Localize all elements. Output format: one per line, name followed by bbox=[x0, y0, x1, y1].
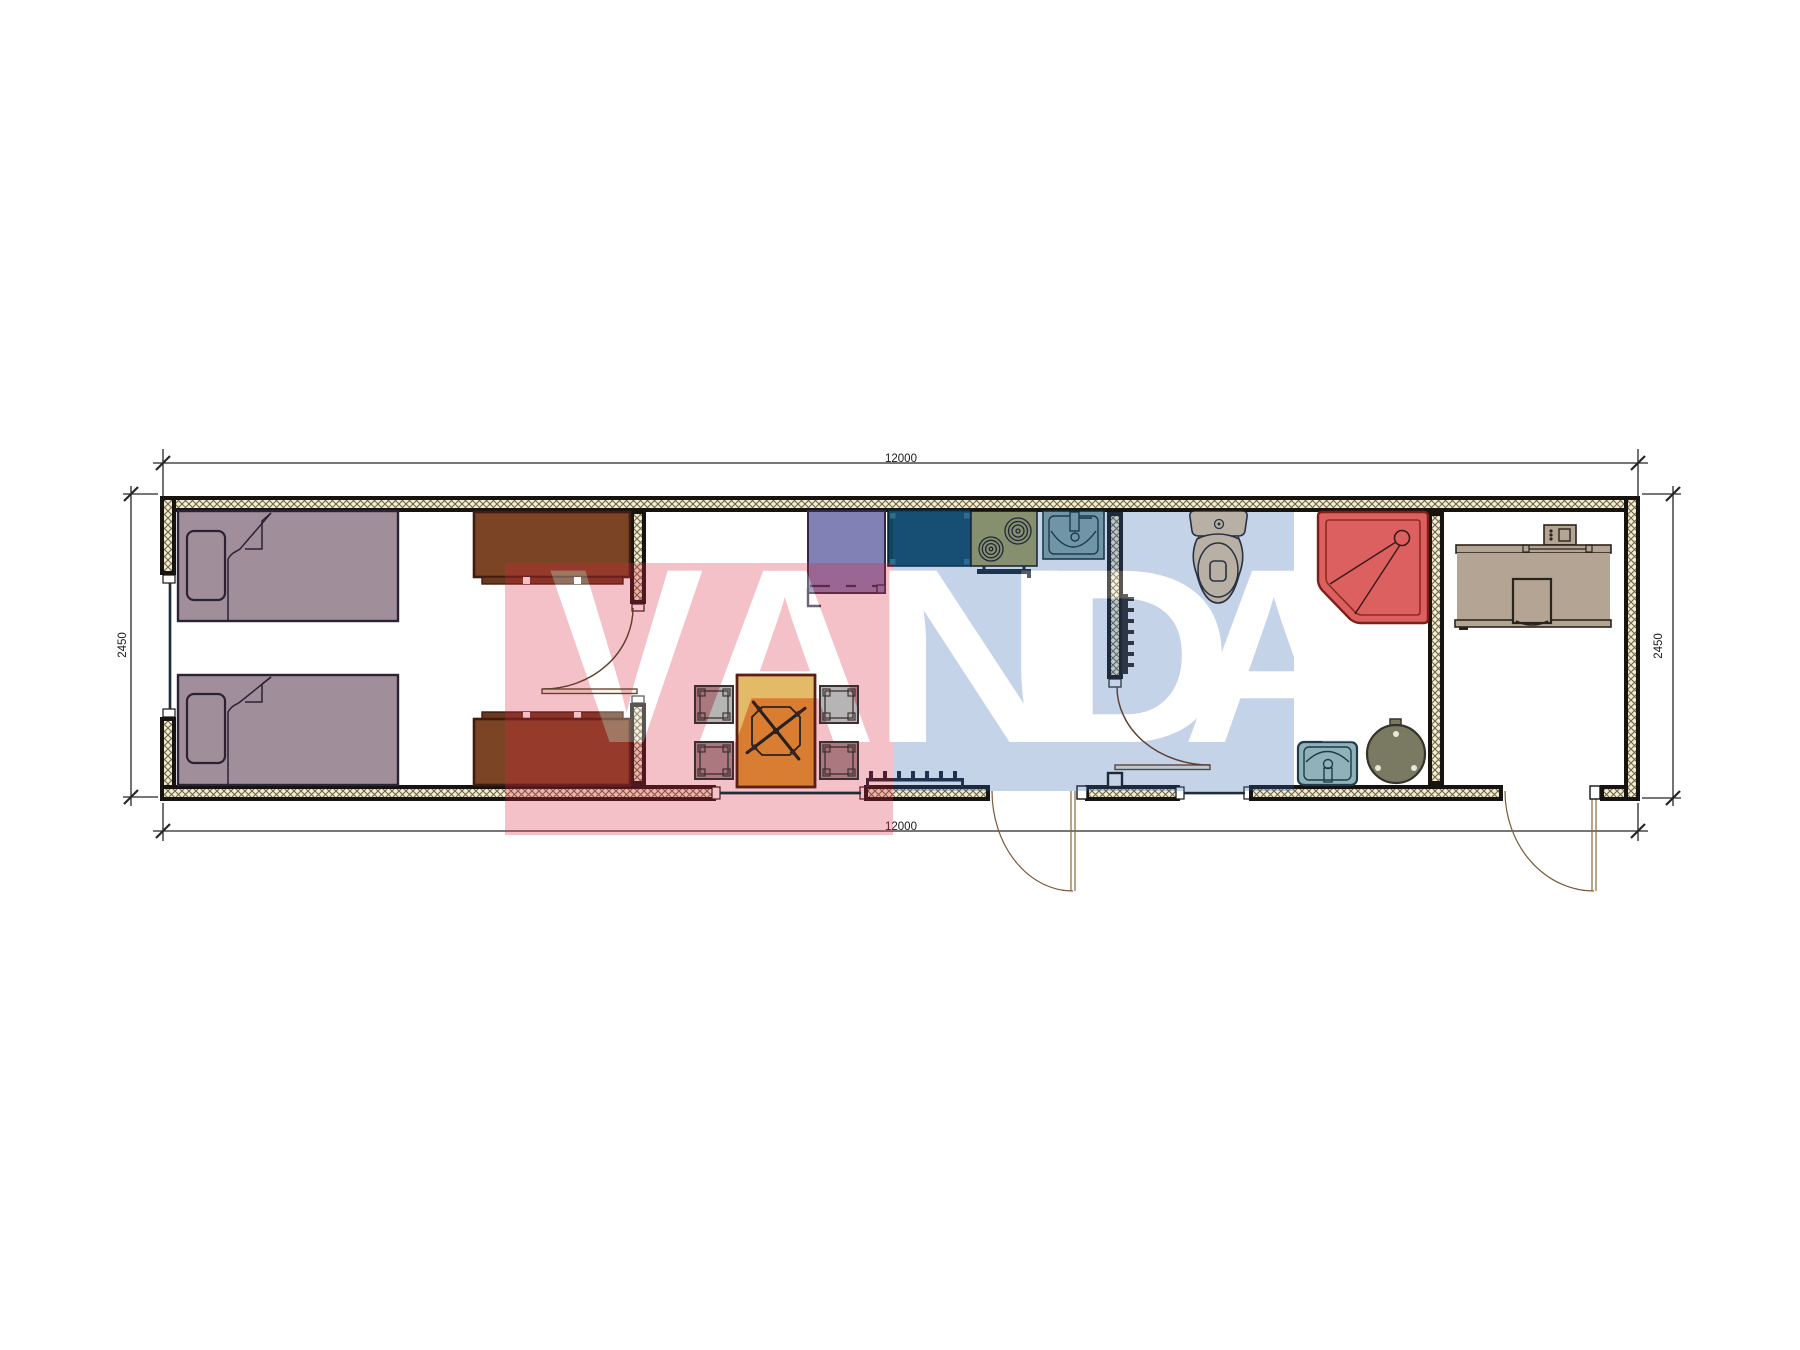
svg-text:V: V bbox=[549, 518, 704, 796]
svg-text:2450: 2450 bbox=[117, 632, 129, 658]
svg-text:12000: 12000 bbox=[885, 453, 917, 465]
svg-text:A: A bbox=[693, 517, 877, 795]
svg-text:A: A bbox=[1182, 517, 1366, 795]
svg-text:2450: 2450 bbox=[1653, 633, 1665, 659]
